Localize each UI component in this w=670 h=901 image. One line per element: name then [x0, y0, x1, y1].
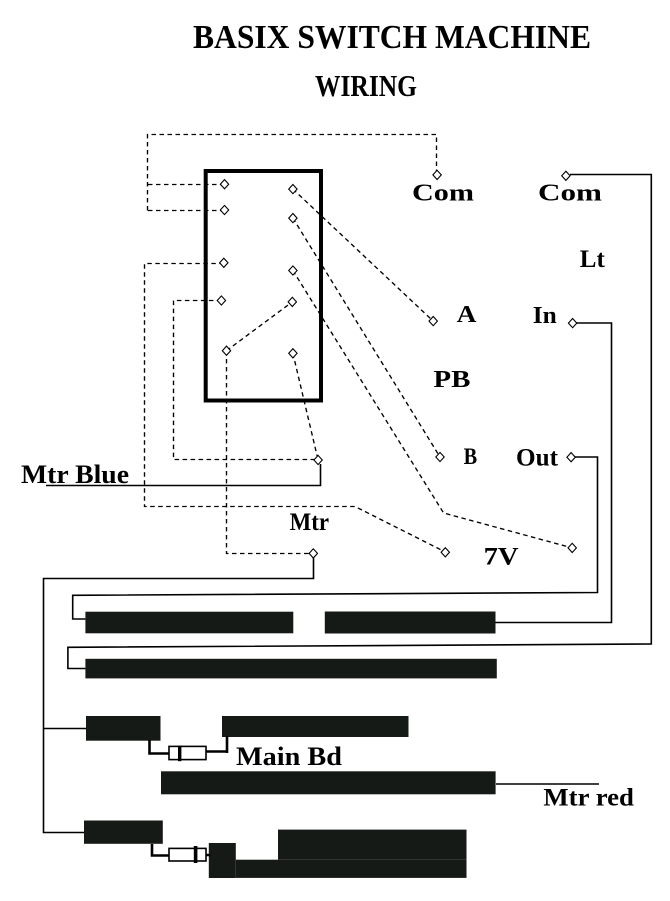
svg-text:Main Bd: Main Bd [236, 742, 343, 771]
svg-text:Mtr Blue: Mtr Blue [21, 460, 129, 489]
svg-text:Mtr: Mtr [290, 509, 329, 536]
svg-text:Com: Com [538, 181, 602, 207]
svg-text:In: In [533, 303, 557, 329]
svg-text:PB: PB [433, 367, 470, 393]
svg-text:BASIX SWITCH MACHINE: BASIX SWITCH MACHINE [193, 19, 591, 56]
svg-text:Lt: Lt [580, 246, 606, 273]
svg-text:Com: Com [412, 181, 474, 207]
svg-text:WIRING: WIRING [315, 68, 417, 103]
svg-text:B: B [464, 444, 478, 469]
svg-text:7V: 7V [484, 543, 519, 570]
svg-text:A: A [457, 302, 478, 328]
svg-text:Mtr red: Mtr red [543, 785, 634, 812]
svg-text:Out: Out [516, 445, 559, 472]
